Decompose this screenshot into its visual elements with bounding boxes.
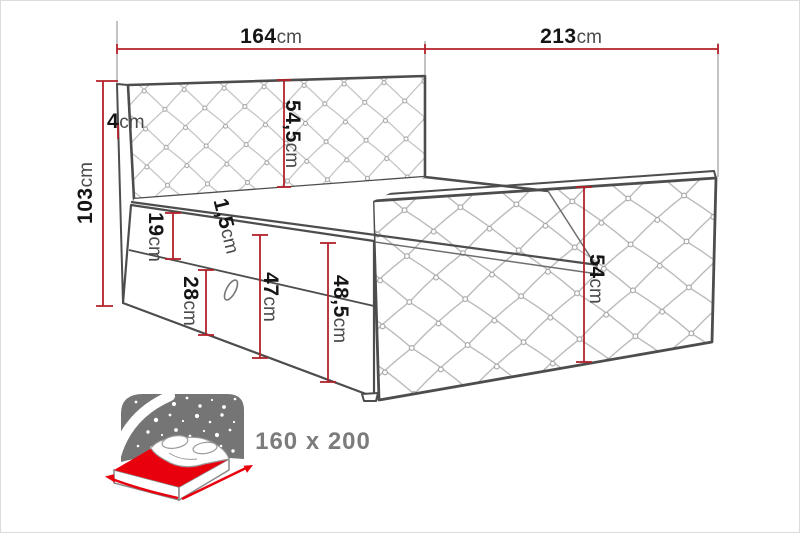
size-badge: 160 x 200 bbox=[255, 428, 371, 455]
label-headboard-width: 164cm bbox=[240, 25, 302, 48]
label-headboard-thickness: 4cm bbox=[107, 110, 145, 133]
label-headboard-height: 103cm bbox=[74, 162, 97, 224]
bed-size-icon bbox=[105, 394, 253, 500]
footboard-tufting bbox=[373, 178, 716, 400]
label-headboard-panel: 54,5cm bbox=[281, 100, 304, 168]
label-top-rail: 19cm bbox=[144, 212, 167, 262]
label-footboard-height: 54cm bbox=[585, 254, 608, 304]
footboard bbox=[373, 171, 716, 400]
label-base-total-height: 48,5cm bbox=[329, 275, 352, 343]
label-drawer-front: 28cm bbox=[179, 276, 202, 326]
bed-leg bbox=[362, 393, 378, 401]
bed-dimension-diagram: 164cm 213cm 103cm 4cm 54,5cm 19cm 1,5cm … bbox=[0, 0, 800, 533]
diagram-canvas: 164cm 213cm 103cm 4cm 54,5cm 19cm 1,5cm … bbox=[1, 1, 799, 532]
label-base-height: 47cm bbox=[259, 272, 282, 322]
label-bed-length: 213cm bbox=[540, 25, 602, 48]
